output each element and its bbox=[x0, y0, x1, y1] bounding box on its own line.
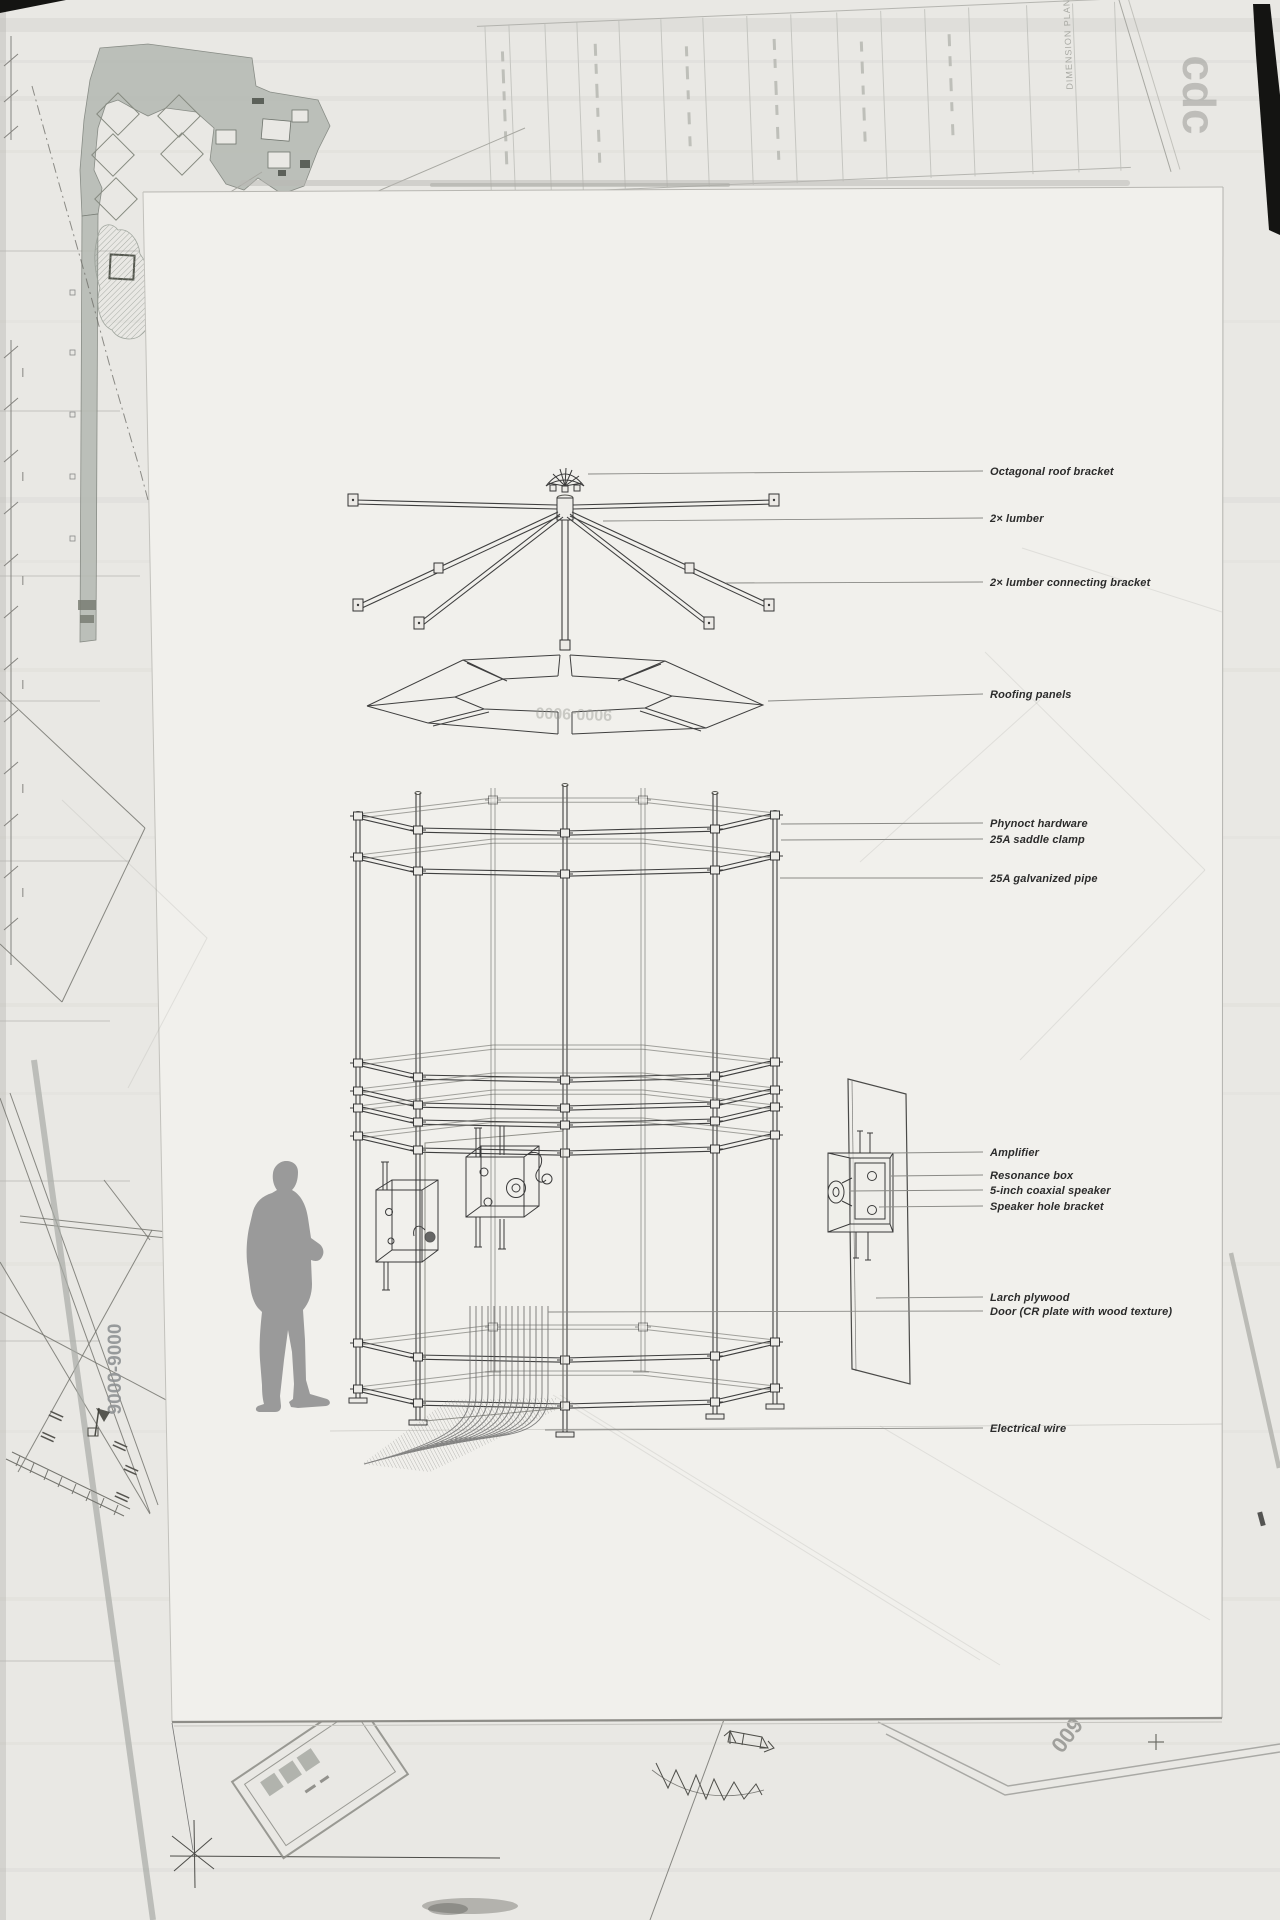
label-speaker-hole-bracket: Speaker hole bracket bbox=[990, 1201, 1105, 1213]
label-larch-plywood: Larch plywood bbox=[990, 1292, 1070, 1304]
label-roofing-panels: Roofing panels bbox=[990, 689, 1072, 701]
main-sheet bbox=[143, 180, 1223, 1726]
label-2x-lumber: 2× lumber bbox=[989, 513, 1044, 525]
label-2x-lumber-connecting-bracket: 2× lumber connecting bracket bbox=[989, 577, 1152, 589]
label-electrical-wire: Electrical wire bbox=[990, 1423, 1066, 1435]
scanned-drawing-page: DIMENSION PLAN cdc bbox=[0, 0, 1280, 1920]
left-margin-watermark: 9000-9000 bbox=[105, 1324, 126, 1415]
label-resonance-box: Resonance box bbox=[990, 1170, 1074, 1182]
drawing-canvas: DIMENSION PLAN cdc bbox=[0, 0, 1280, 1920]
label-octagonal-roof-bracket: Octagonal roof bracket bbox=[990, 466, 1115, 478]
roof-panel-ghost-text: 9000-9000 bbox=[535, 703, 612, 723]
label-door: Door (CR plate with wood texture) bbox=[990, 1306, 1172, 1318]
label-amplifier: Amplifier bbox=[989, 1147, 1040, 1159]
cdc-stamp-text: cdc bbox=[1173, 55, 1225, 134]
label-coaxial-speaker: 5-inch coaxial speaker bbox=[990, 1185, 1111, 1197]
label-saddle-clamp: 25A saddle clamp bbox=[989, 834, 1085, 846]
label-galvanized-pipe: 25A galvanized pipe bbox=[989, 873, 1098, 885]
label-phynoct-hardware: Phynoct hardware bbox=[990, 818, 1088, 830]
